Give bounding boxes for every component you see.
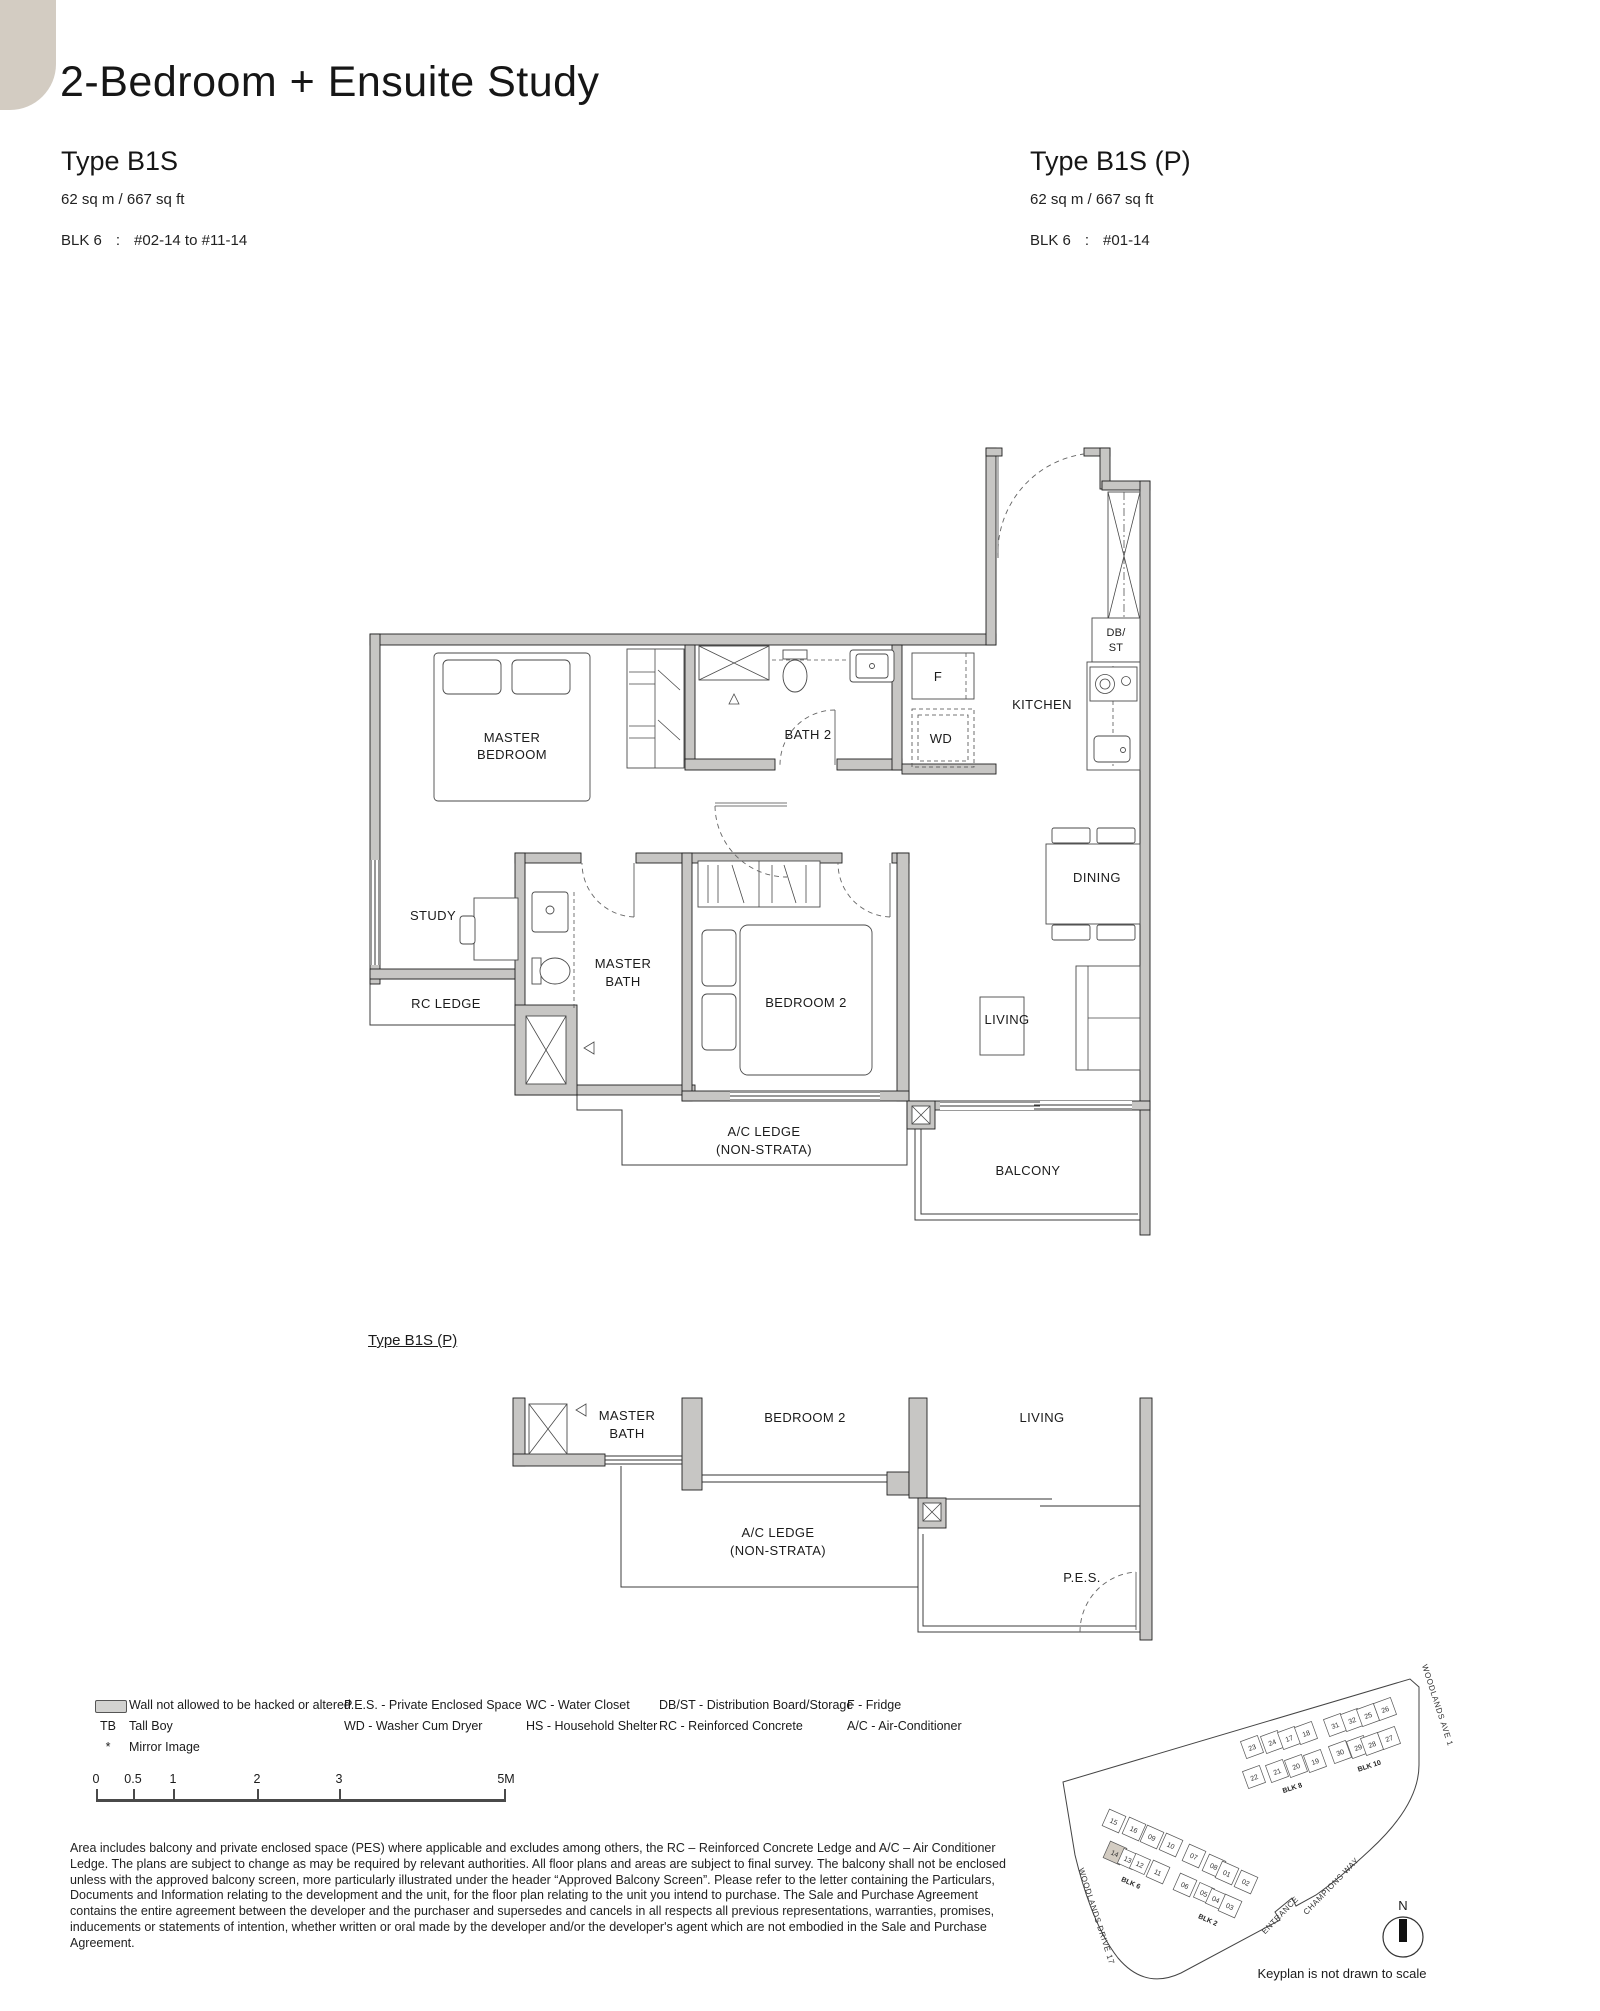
kp-blk2: BLK 2 (1197, 1913, 1218, 1928)
label-dbst-1: DB/ (1107, 627, 1127, 639)
unit-right-type: Type B1S (P) (1030, 146, 1191, 177)
scale-5m: 5M (497, 1772, 514, 1786)
unit-left-header: Type B1S 62 sq m / 667 sq ft BLK 6:#02-1… (61, 146, 247, 249)
unit-left-blk-label: BLK 6 (61, 232, 102, 249)
scale-tick (504, 1789, 506, 1802)
label-dbst-2: ST (1109, 642, 1124, 654)
keyplan-lower-blocks: 15 16 09 10 07 08 01 02 14 13 12 11 06 0… (1102, 1809, 1258, 1928)
kitchen-counter (1087, 662, 1140, 770)
unit-right-blk-label: BLK 6 (1030, 232, 1071, 249)
label-fridge: F (934, 669, 942, 684)
unit-left-area: 62 sq m / 667 sq ft (61, 191, 247, 208)
disclaimer-text: Area includes balcony and private enclos… (70, 1841, 1022, 1952)
keyplan: 23 24 17 18 31 32 25 26 22 21 20 19 30 2… (1030, 1640, 1600, 2011)
scale-tick (96, 1789, 98, 1802)
bedroom2-wardrobe (698, 861, 820, 907)
bath2-fixtures (699, 646, 894, 704)
unit-left-blk: BLK 6:#02-14 to #11-14 (61, 232, 247, 249)
scale-1: 1 (170, 1772, 177, 1786)
north-label: N (1398, 1898, 1407, 1913)
master-wardrobe (627, 649, 684, 768)
unit-left-levels: #02-14 to #11-14 (134, 232, 247, 249)
wall-swatch (95, 1700, 127, 1713)
main-floorplan: MASTER BEDROOM BATH 2 KITCHEN DB/ ST F W… (340, 420, 1200, 1360)
floorplan-page: 2-Bedroom + Ensuite Study Type B1S 62 sq… (0, 0, 1600, 2011)
master-bath-fixtures (526, 892, 594, 1084)
p-label-ac-ledge-2: (NON-STRATA) (730, 1543, 826, 1558)
label-rc-ledge: RC LEDGE (411, 996, 481, 1011)
unit-left-blk-sep: : (116, 232, 120, 249)
keyplan-roads: WOODLANDS AVE 1 WOODLANDS DRIVE 17 CHAMP… (1076, 1663, 1454, 1965)
label-ac-ledge-2: (NON-STRATA) (716, 1142, 812, 1157)
p-label-ac-ledge-1: A/C LEDGE (742, 1525, 815, 1540)
road-woodlands-ave1: WOODLANDS AVE 1 (1420, 1663, 1455, 1747)
label-bath2: BATH 2 (785, 727, 832, 742)
label-wd: WD (930, 731, 952, 746)
scale-tick (339, 1789, 341, 1802)
legend-mirror-label: Mirror Image (129, 1740, 200, 1754)
p-label-pes: P.E.S. (1063, 1570, 1101, 1585)
unit-right-header: Type B1S (P) 62 sq m / 667 sq ft BLK 6:#… (1030, 146, 1191, 249)
master-bed (434, 653, 590, 801)
living-sofa (1076, 966, 1140, 1070)
legend-rc: RC - Reinforced Concrete (659, 1719, 803, 1733)
label-ac-ledge-1: A/C LEDGE (728, 1124, 801, 1139)
label-master-bedroom-2: BEDROOM (477, 747, 547, 762)
fridge-box (912, 653, 974, 699)
scale-tick (173, 1789, 175, 1802)
scale-tick (133, 1789, 135, 1802)
corner-decoration (0, 0, 56, 110)
keyplan-caption: Keyplan is not drawn to scale (1257, 1966, 1426, 1981)
label-master-bath-1: MASTER (595, 956, 652, 971)
walls (370, 448, 1150, 1235)
label-bedroom2: BEDROOM 2 (765, 995, 847, 1010)
p-label-living: LIVING (1019, 1410, 1064, 1425)
scale-3: 3 (336, 1772, 343, 1786)
unit-right-blk-sep: : (1085, 232, 1089, 249)
legend-tb-key: TB (93, 1719, 123, 1733)
label-living: LIVING (984, 1012, 1029, 1027)
label-master-bedroom-1: MASTER (484, 730, 541, 745)
study-desk (460, 898, 518, 960)
kp-blk6: BLK 6 (1120, 1876, 1141, 1891)
legend-fridge: F - Fridge (847, 1698, 901, 1712)
label-kitchen: KITCHEN (1012, 697, 1072, 712)
road-woodlands-drive17: WOODLANDS DRIVE 17 (1076, 1867, 1116, 1966)
kp-blk8: BLK 8 (1282, 1782, 1303, 1795)
scale-2: 2 (254, 1772, 261, 1786)
scale-bar-line (96, 1799, 506, 1802)
page-title: 2-Bedroom + Ensuite Study (60, 58, 600, 107)
partial-floorplan: MASTER BATH BEDROOM 2 LIVING A/C LEDGE (… (340, 1360, 1200, 1660)
p-label-bedroom2: BEDROOM 2 (764, 1410, 846, 1425)
p-label-master-bath-1: MASTER (599, 1408, 656, 1423)
legend-wall: Wall not allowed to be hacked or altered (129, 1698, 351, 1712)
ac-unit-box (912, 1106, 930, 1124)
label-balcony: BALCONY (996, 1163, 1061, 1178)
legend-wd: WD - Washer Cum Dryer (344, 1719, 482, 1733)
scale-tick (257, 1789, 259, 1802)
scale-bar: 0 0.5 1 2 3 5M (96, 1772, 516, 1812)
partial-room-labels: MASTER BATH BEDROOM 2 LIVING A/C LEDGE (… (599, 1408, 1101, 1585)
unit-right-levels: #01-14 (1103, 232, 1150, 249)
legend-mirror-key: * (93, 1740, 123, 1754)
road-entrance: ENTRANCE (1260, 1895, 1300, 1936)
label-dining: DINING (1073, 870, 1121, 885)
unit-left-type: Type B1S (61, 146, 247, 177)
legend-dbst: DB/ST - Distribution Board/Storage (659, 1698, 853, 1712)
keyplan-upper-blocks: 23 24 17 18 31 32 25 26 22 21 20 19 30 2… (1240, 1697, 1400, 1795)
label-master-bath-2: BATH (605, 974, 640, 989)
partial-ledge-outlines (621, 1466, 1140, 1632)
unit-right-area: 62 sq m / 667 sq ft (1030, 191, 1191, 208)
legend-wc: WC - Water Closet (526, 1698, 630, 1712)
scale-0: 0 (93, 1772, 100, 1786)
road-champions-way: CHAMPIONS WAY (1302, 1856, 1361, 1917)
label-study: STUDY (410, 908, 456, 923)
scale-05: 0.5 (124, 1772, 141, 1786)
legend-pes: P.E.S. - Private Enclosed Space (344, 1698, 522, 1712)
unit-right-blk: BLK 6:#01-14 (1030, 232, 1191, 249)
p-label-master-bath-2: BATH (609, 1426, 644, 1441)
kp-blk10: BLK 10 (1357, 1759, 1382, 1773)
legend-tb-label: Tall Boy (129, 1719, 173, 1733)
legend-ac: A/C - Air-Conditioner (847, 1719, 962, 1733)
partial-plan-heading: Type B1S (P) (368, 1332, 457, 1349)
north-compass-icon: N (1383, 1898, 1423, 1957)
legend-hs: HS - Household Shelter (526, 1719, 657, 1733)
